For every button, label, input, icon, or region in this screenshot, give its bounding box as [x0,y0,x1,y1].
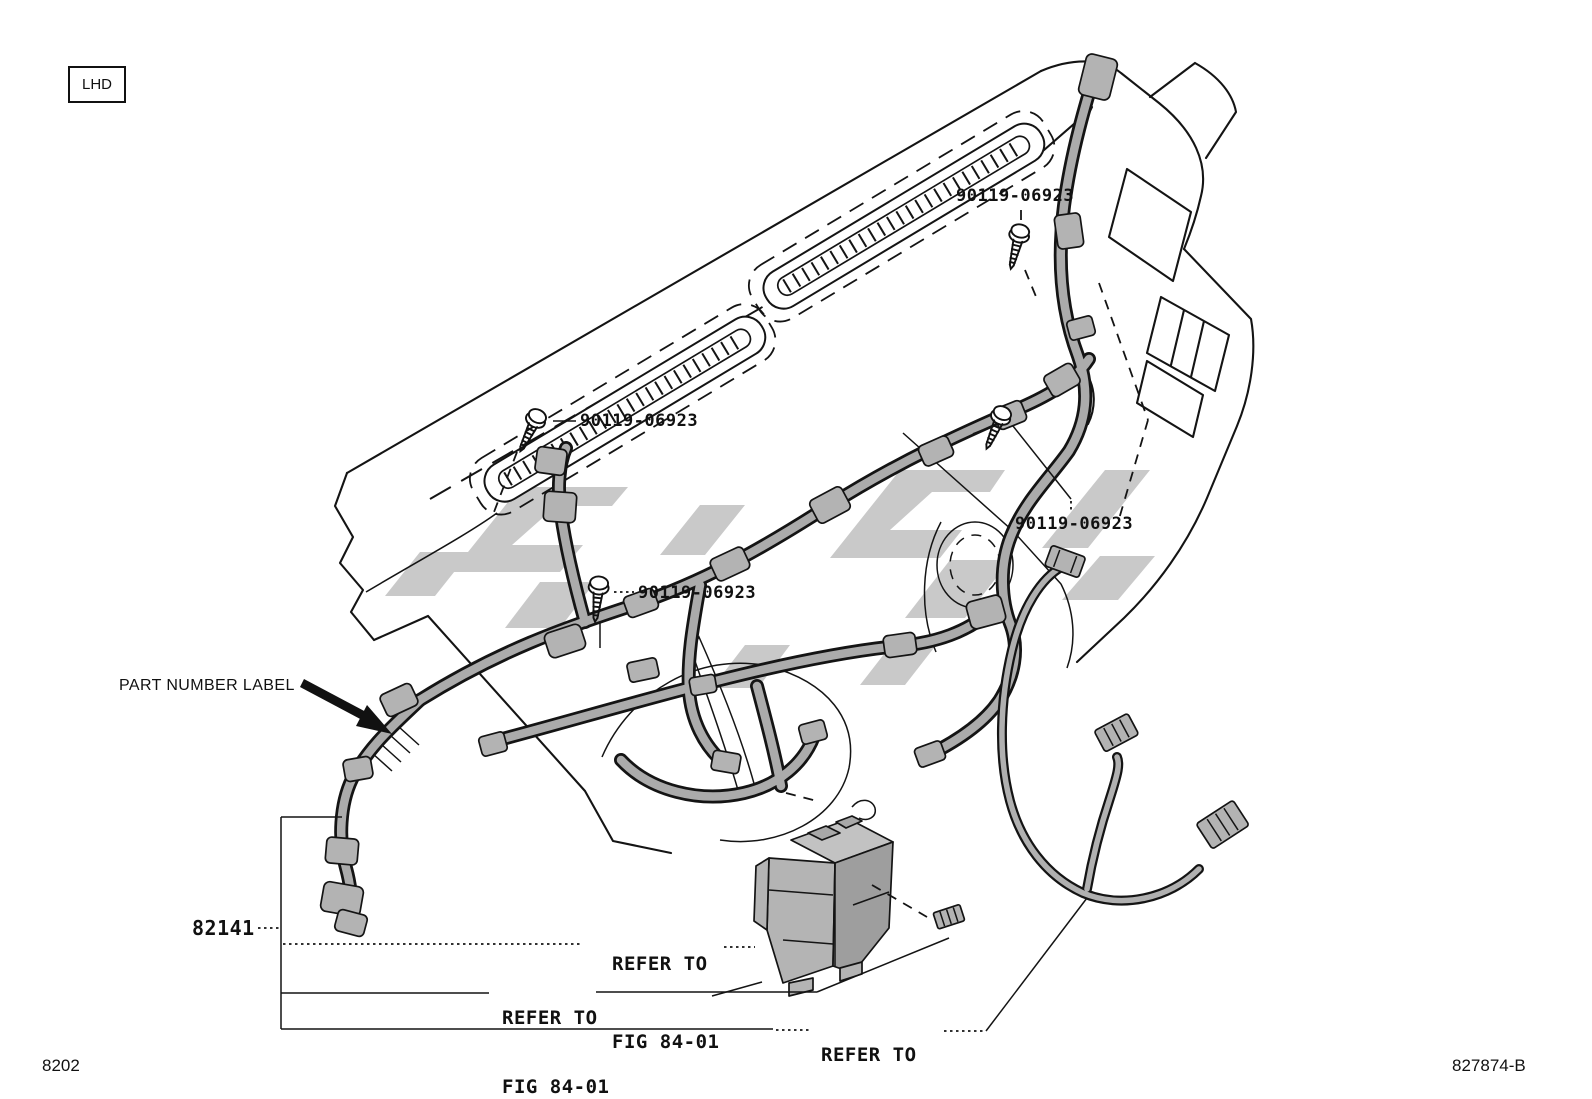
part-number-arrow-icon [300,679,392,734]
junction-box [754,800,893,996]
refer-line: REFER TO [612,951,743,977]
refer-to-fig86-pnc86203-label: REFER TO FIG 86-01 (PNC 86203) [821,1000,952,1099]
cable-connector-mid [1094,713,1139,752]
harness-part-label: 82141 [192,916,255,940]
refer-to-fig84-label: REFER TO FIG 84-01 [502,961,609,1099]
part-number-label-text: PART NUMBER LABEL [119,677,295,695]
side-vent [1109,169,1191,281]
refer-line: REFER TO [821,1044,952,1066]
parts-diagram-page: LHD 90119-06923 90119-06923 90119-06923 … [0,0,1592,1099]
bolt-part-label-4: 90119-06923 [638,583,756,603]
cable-connector-end [1196,800,1249,849]
bolt-part-label-1: 90119-06923 [956,186,1074,206]
bolt-part-label-3: 90119-06923 [1015,514,1133,534]
refer-line: FIG 84-01 [612,1029,743,1055]
refer-to-fig84-pnc82600-label: REFER TO FIG 84-01 (PNC 82600) [612,899,743,1099]
figure-number: 8202 [42,1056,80,1076]
bolt-icon-1 [1001,222,1031,271]
refer-line: FIG 84-01 [502,1076,609,1099]
refer-line: REFER TO [502,1007,609,1030]
small-connector [933,904,965,929]
lhd-badge: LHD [68,66,126,103]
bolt-part-label-2: 90119-06923 [580,411,698,431]
drawing-number: 827874-B [1452,1056,1526,1076]
